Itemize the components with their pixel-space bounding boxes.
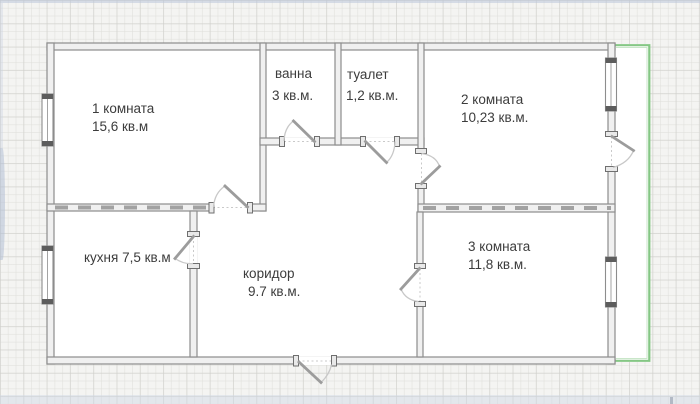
room1-area: 15,6 кв.м: [92, 119, 148, 134]
window-kitchen: [42, 246, 53, 304]
window-room2: [606, 58, 617, 111]
floor-plan-canvas: 1 комната 15,6 кв.м ванна 3 кв.м. туалет…: [0, 0, 700, 404]
room2-label: 2 комната: [461, 92, 524, 107]
kitchen-label: кухня 7,5 кв.м: [84, 250, 171, 265]
room2-area: 10,23 кв.м.: [461, 110, 528, 125]
floor-plan-drawing: 1 комната 15,6 кв.м ванна 3 кв.м. туалет…: [0, 0, 700, 404]
bath-area: 3 кв.м.: [272, 88, 313, 103]
corridor-area: 9.7 кв.м.: [248, 284, 300, 299]
toilet-area: 1,2 кв.м.: [346, 88, 398, 103]
room1-label: 1 комната: [92, 101, 155, 116]
room3-area: 11,8 кв.м.: [468, 257, 527, 272]
wall-room1-right: [260, 43, 266, 211]
corridor-label: коридор: [243, 266, 295, 281]
door-entrance: [299, 362, 332, 383]
bath-label: ванна: [275, 66, 312, 81]
window-room1: [42, 94, 53, 146]
window-room3: [606, 257, 617, 307]
toilet-label: туалет: [347, 67, 389, 82]
room3-label: 3 комната: [468, 239, 531, 254]
wall-top: [47, 43, 615, 50]
wall-bath-toilet-divider: [335, 43, 341, 145]
